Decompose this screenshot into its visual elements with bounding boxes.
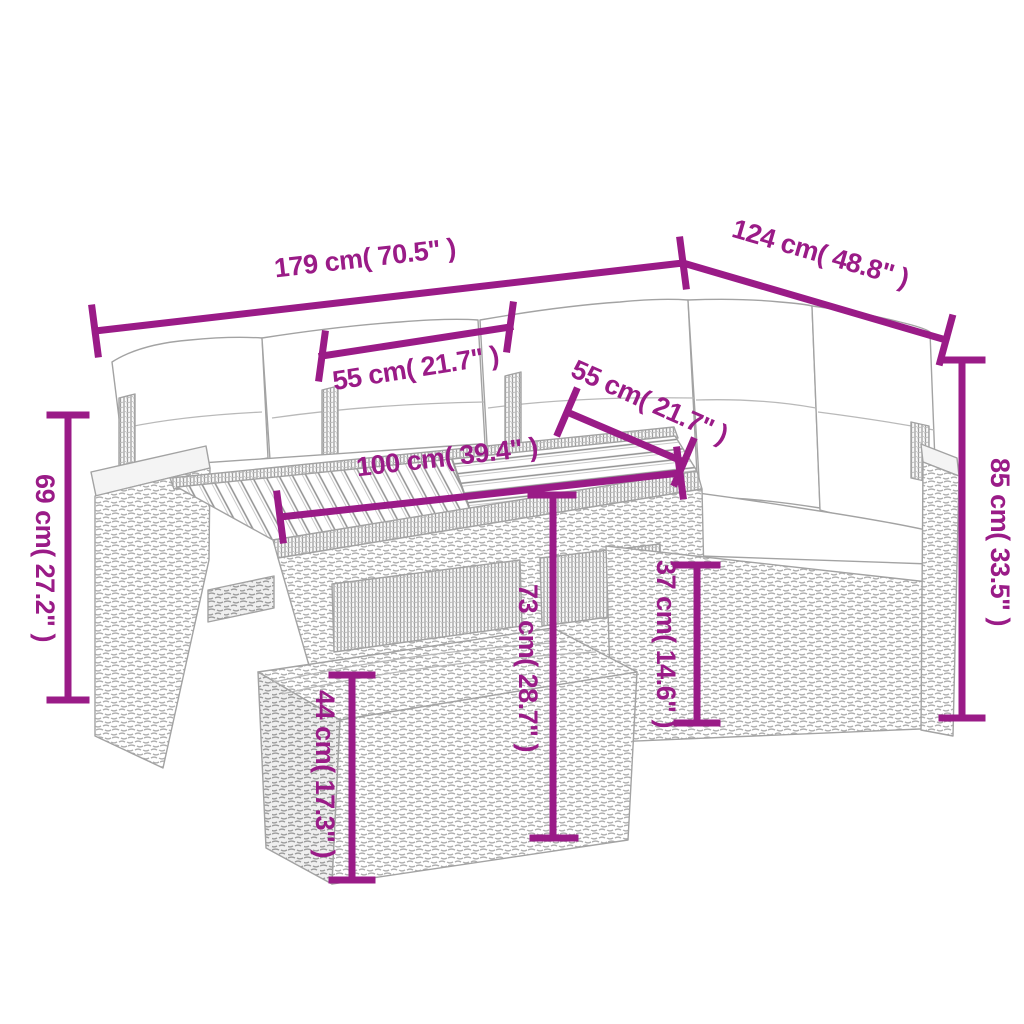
left-armrest-front (95, 468, 210, 768)
back-cushion-4 (688, 299, 820, 508)
dim-label-back-height: 85 cm( 33.5" ) (985, 458, 1015, 626)
right-armrest (921, 444, 959, 736)
right-armrest-front (921, 462, 959, 736)
dim-label-table-height: 73 cm( 28.7" ) (513, 584, 543, 752)
dim-label-total-width: 179 cm( 70.5" ) (273, 233, 458, 284)
back-cushion-5 (812, 306, 938, 540)
dim-label-ottoman-height: 44 cm( 17.3" ) (310, 690, 340, 858)
sofa-frame-strip (208, 576, 274, 622)
dim-label-seat-height: 37 cm( 14.6" ) (651, 560, 681, 728)
diagram-canvas: 179 cm( 70.5" ) 124 cm( 48.8" ) 55 cm( 2… (0, 0, 1024, 1024)
dimension-diagram: 179 cm( 70.5" ) 124 cm( 48.8" ) 55 cm( 2… (0, 0, 1024, 1024)
dim-label-armrest-height: 69 cm( 27.2" ) (30, 474, 60, 642)
